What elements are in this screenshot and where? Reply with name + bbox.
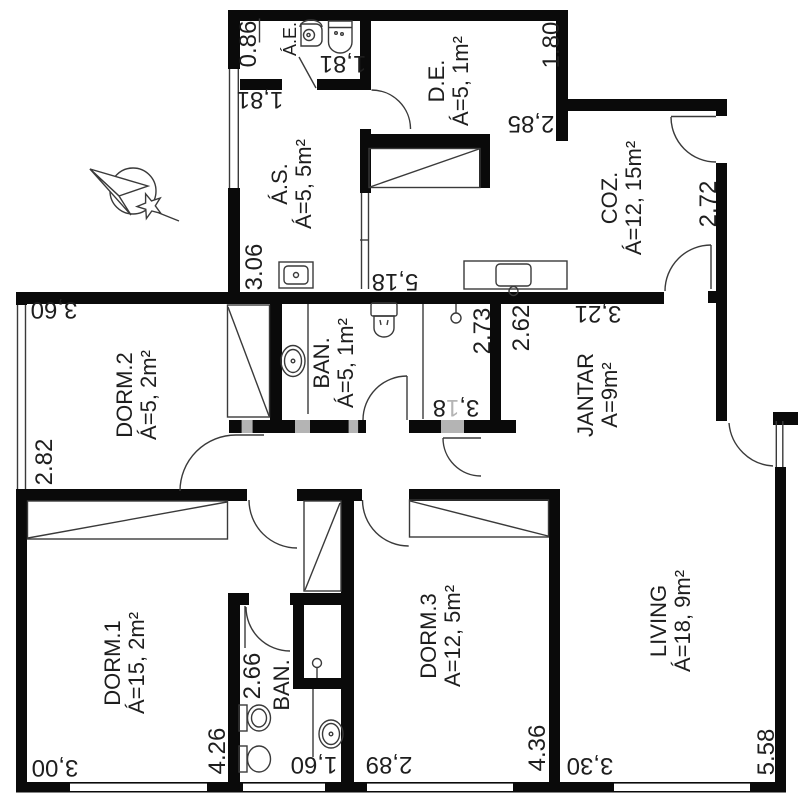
svg-text:D.E.: D.E. [424,60,449,103]
svg-text:2.66: 2.66 [239,653,266,700]
svg-text:1,81: 1,81 [237,86,284,113]
svg-text:1.80: 1.80 [538,22,565,69]
svg-text:2.73: 2.73 [469,308,496,355]
svg-text:2,85: 2,85 [508,110,555,137]
svg-text:Á.S.: Á.S. [267,163,292,205]
svg-text:JANTAR: JANTAR [573,353,598,437]
svg-text:DORM.3: DORM.3 [416,593,441,679]
svg-text:A=12, 5m²: A=12, 5m² [440,585,465,687]
svg-text:Á=18, 9m²: Á=18, 9m² [670,570,695,672]
svg-text:Á=5, 1m²: Á=5, 1m² [333,318,358,408]
svg-text:3,00: 3,00 [32,754,79,781]
svg-text:Á.E.: Á.E. [280,22,300,56]
svg-text:Á=5, 5m²: Á=5, 5m² [291,139,316,229]
svg-text:3,18: 3,18 [433,394,480,421]
svg-text:0.86: 0.86 [235,21,262,68]
svg-text:3,21: 3,21 [575,300,622,327]
svg-text:1,60: 1,60 [291,751,338,778]
svg-text:Á=15, 2m²: Á=15, 2m² [124,612,149,714]
svg-text:2,89: 2,89 [366,751,413,778]
svg-text:3,60: 3,60 [31,296,78,323]
svg-text:DORM.2: DORM.2 [112,352,137,438]
svg-text:5,18: 5,18 [372,268,419,295]
svg-text:BAN.: BAN. [269,659,294,710]
svg-text:3,30: 3,30 [567,752,614,779]
svg-text:3.06: 3.06 [241,244,268,291]
svg-text:1,81: 1,81 [320,50,367,77]
svg-text:A=9m²: A=9m² [597,362,622,427]
svg-text:2.72: 2.72 [695,181,722,228]
svg-text:2.82: 2.82 [31,439,58,486]
svg-text:BAN.: BAN. [309,337,334,388]
svg-text:4.26: 4.26 [204,728,231,775]
svg-text:Á=5, 2m²: Á=5, 2m² [136,350,161,440]
svg-text:Á=12, 15m²: Á=12, 15m² [621,141,646,255]
svg-text:COZ.: COZ. [597,172,622,225]
svg-text:Á=5, 1m²: Á=5, 1m² [448,36,473,126]
svg-text:4.36: 4.36 [524,725,551,772]
svg-text:5.58: 5.58 [753,729,780,776]
svg-text:2.62: 2.62 [508,305,535,352]
svg-text:LIVING: LIVING [646,585,671,657]
svg-text:DORM.1: DORM.1 [100,620,125,706]
